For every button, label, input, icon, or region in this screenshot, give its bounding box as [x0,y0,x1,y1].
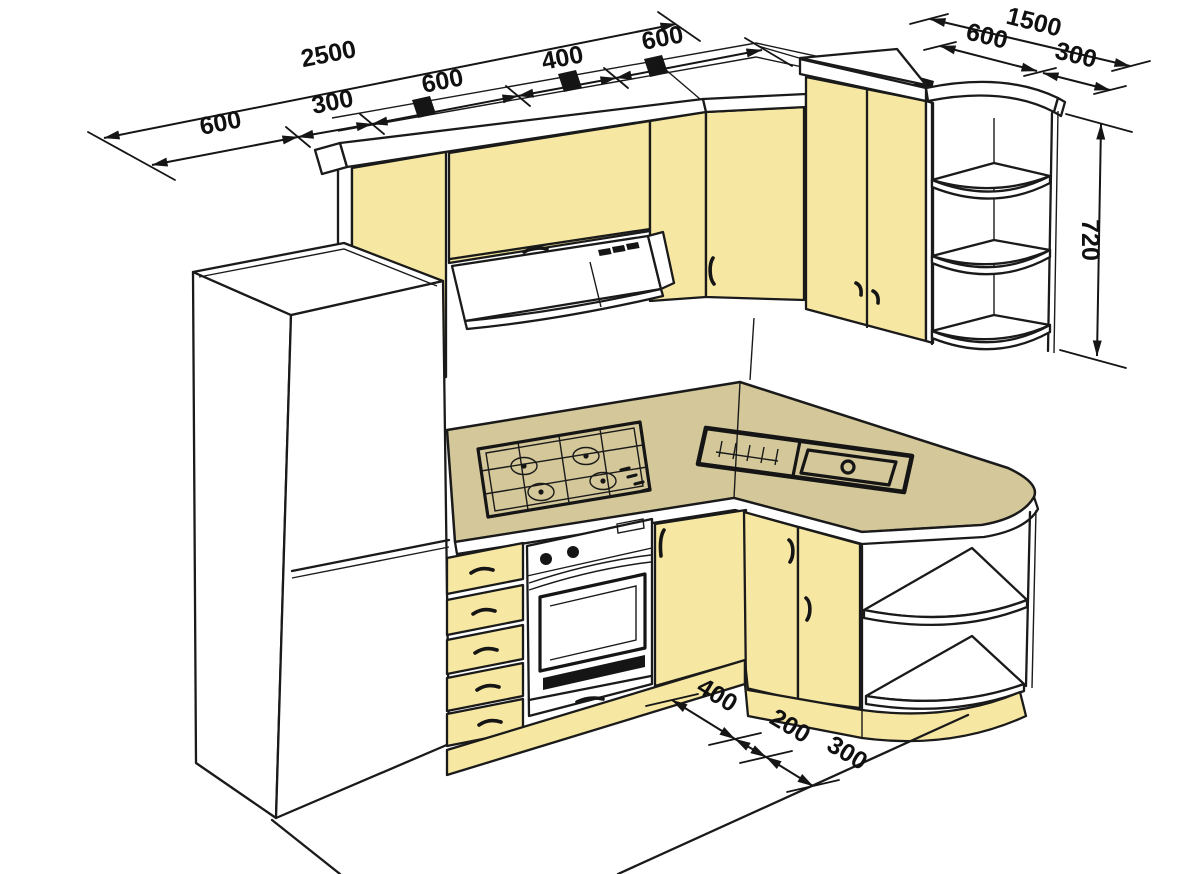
oven-knob [567,546,579,558]
corner-base-door [655,510,746,686]
tall-cabinet [193,243,449,818]
oven-knob [540,553,552,565]
drawer-unit [447,543,523,746]
kitchen-drawing-page: 2500 600 300 600 400 600 1500 600 300 72… [0,0,1200,874]
base-cabinet-corner [655,510,746,686]
tall-cabinet-doors [276,281,449,818]
dim-label-height: 720 [1076,219,1104,261]
kitchen-technical-drawing: 2500 600 300 600 400 600 1500 600 300 72… [0,0,1200,874]
wall-cabinet-right [800,49,933,343]
oven [527,519,652,716]
wall-cabinet-corner [650,107,804,301]
base-cabinet-right [744,512,860,708]
tall-cabinet-side [193,272,291,818]
corner-cabinet-door [706,107,804,300]
